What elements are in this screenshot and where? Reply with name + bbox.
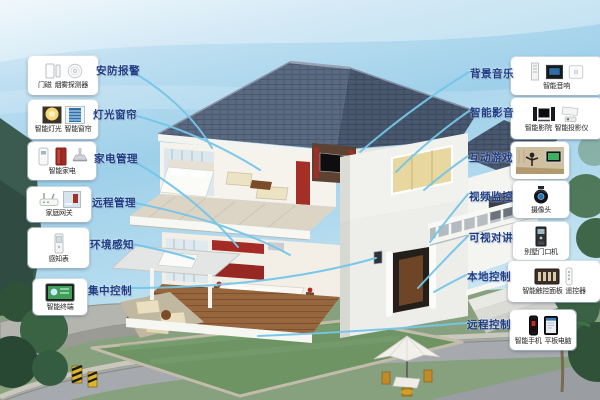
callout-label-remote-management: 远程管理 xyxy=(92,195,136,210)
smart-light-icon xyxy=(42,106,62,124)
callout-label-security-alarm: 安防报警 xyxy=(96,63,140,78)
smart-curtain-icon xyxy=(65,106,85,124)
fridge-icon xyxy=(54,147,68,166)
router-icon xyxy=(38,191,60,208)
device-caption: 遥控器 xyxy=(566,287,586,295)
device-caption: 智能灯光 xyxy=(35,125,62,133)
callout-label-remote-control: 远程控制 xyxy=(467,317,511,332)
device-caption: 烟雾探测器 xyxy=(54,81,88,89)
device-caption: 智能影院 xyxy=(525,124,552,132)
device-box-remote-control: 智能手机 平板电脑 xyxy=(510,310,576,350)
device-box-video-surveillance: 摄像头 xyxy=(513,181,569,218)
device-caption: 智能投影仪 xyxy=(555,124,589,132)
callout-label-environment-sensing: 环境感知 xyxy=(90,237,134,252)
device-caption: 智能窗帘 xyxy=(65,125,92,133)
device-caption: 智能音响 xyxy=(543,82,570,90)
device-box-background-music: 智能音响 xyxy=(511,57,600,95)
smart-home-diagram: 门磁 烟雾探测器 安防报警 智能灯光 智能窗帘 灯光窗帘 智能家电 家电管理 家… xyxy=(0,0,600,400)
game-scene-image xyxy=(516,147,564,174)
water-heater-icon xyxy=(36,147,51,166)
device-box-environment-sensing: 感知表 xyxy=(28,228,89,268)
callout-label-background-music: 背景音乐 xyxy=(470,66,514,81)
device-caption: 别墅门口机 xyxy=(524,248,558,256)
callout-label-video-intercom: 可视对讲 xyxy=(469,230,513,245)
camera-icon xyxy=(531,185,551,205)
device-box-local-control: 智能触控面板 遥控器 xyxy=(508,261,600,302)
device-caption: 家庭网关 xyxy=(46,209,73,217)
callout-label-video-surveillance: 视频监控 xyxy=(469,189,513,204)
device-box-appliance-management: 智能家电 xyxy=(28,142,96,180)
device-box-video-intercom: 别墅门口机 xyxy=(513,222,569,260)
callout-label-av-entertainment: 智能影音 xyxy=(470,105,514,120)
callout-label-appliance-management: 家电管理 xyxy=(94,151,138,166)
remote-controller-icon xyxy=(563,267,575,286)
device-box-remote-management: 家庭网关 xyxy=(27,187,91,222)
wall-panel-icon xyxy=(567,63,585,81)
device-caption: 平板电脑 xyxy=(545,337,572,345)
device-caption: 智能触控面板 xyxy=(522,287,562,295)
range-hood-icon xyxy=(71,147,89,166)
device-box-lighting-curtain: 智能灯光 智能窗帘 xyxy=(28,100,98,139)
door-sensor-icon xyxy=(43,62,63,80)
device-box-security-alarm: 门磁 烟雾探测器 xyxy=(28,56,98,95)
callout-label-interactive-games: 互动游戏 xyxy=(469,150,513,165)
callout-label-lighting-curtain: 灯光窗帘 xyxy=(93,107,137,122)
device-caption: 智能终端 xyxy=(47,303,74,311)
device-caption: 智能家电 xyxy=(49,167,76,175)
tablet-icon xyxy=(543,315,559,336)
device-box-interactive-games xyxy=(511,142,569,179)
touch-terminal-icon xyxy=(45,283,75,302)
device-box-av-entertainment: 智能影院 智能投影仪 xyxy=(511,98,600,139)
sensor-meter-icon xyxy=(51,233,67,254)
device-caption: 摄像头 xyxy=(531,206,551,214)
control-screen-icon xyxy=(545,63,564,81)
smartphone-icon xyxy=(527,315,540,336)
door-station-icon xyxy=(533,226,549,247)
device-box-central-control: 智能终端 xyxy=(33,279,87,315)
amplifier-icon xyxy=(528,62,542,81)
device-caption: 感知表 xyxy=(48,255,68,263)
smoke-detector-icon xyxy=(66,62,84,80)
callout-label-central-control: 集中控制 xyxy=(88,283,132,298)
projector-icon xyxy=(559,104,581,123)
home-theater-icon xyxy=(532,104,556,123)
device-caption: 门磁 xyxy=(38,81,51,89)
device-caption: 智能手机 xyxy=(515,337,542,345)
callout-label-local-control: 本地控制 xyxy=(467,269,511,284)
room-photo-icon xyxy=(63,191,81,208)
touch-panel-icon xyxy=(534,267,560,286)
